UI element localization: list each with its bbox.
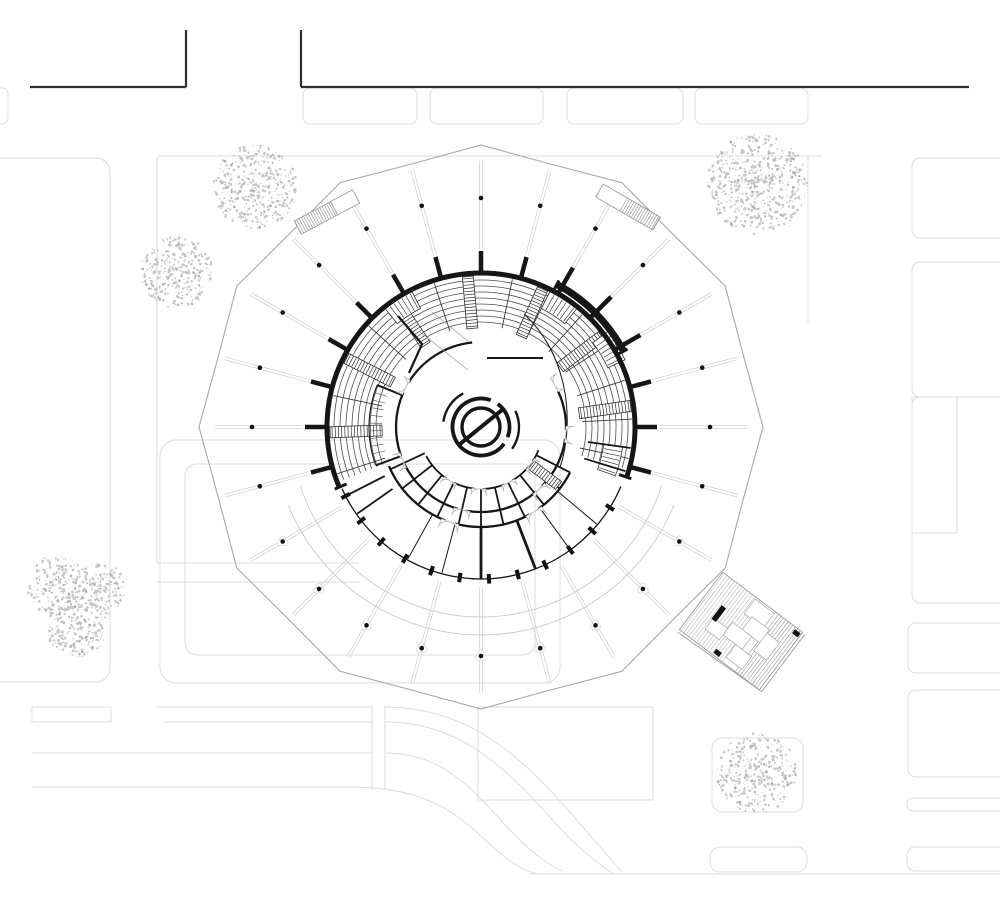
canopy-column-dot <box>700 484 705 489</box>
canopy-column-dot <box>677 310 682 315</box>
canopy-column-dot <box>593 623 598 628</box>
canopy-column-dot <box>258 365 263 370</box>
canopy-column-dot <box>419 646 424 651</box>
site-plan-drawing <box>0 0 1000 913</box>
canopy-column-dot <box>641 263 646 268</box>
canopy-column-dot <box>479 196 484 201</box>
canopy-column-dot <box>419 204 424 209</box>
canopy-column-dot <box>364 623 369 628</box>
canopy-column-dot <box>538 646 543 651</box>
canopy-column-dot <box>317 587 322 592</box>
site-plan-canvas <box>0 0 1000 913</box>
canopy-column-dot <box>250 425 255 430</box>
canopy-column-dot <box>593 226 598 231</box>
canopy-column-dot <box>364 226 369 231</box>
canopy-column-dot <box>700 365 705 370</box>
canopy-column-dot <box>677 539 682 544</box>
canopy-column-dot <box>708 425 713 430</box>
canopy-column-dot <box>317 263 322 268</box>
canopy-column-dot <box>258 484 263 489</box>
canopy-column-dot <box>479 654 484 659</box>
canopy-column-dot <box>538 204 543 209</box>
canopy-column-dot <box>280 539 285 544</box>
canopy-column-dot <box>641 587 646 592</box>
canopy-column-dot <box>280 310 285 315</box>
